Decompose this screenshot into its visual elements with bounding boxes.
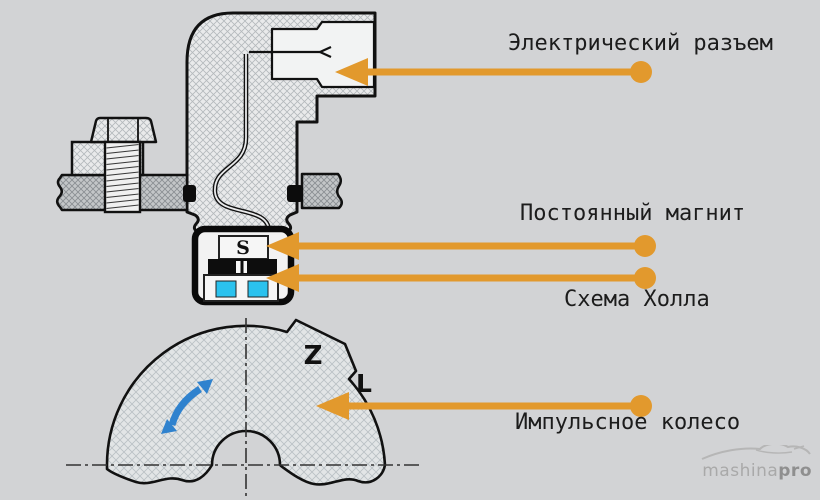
magnet-pole-letter: S [236, 237, 250, 259]
mounting-plate-right [302, 174, 342, 208]
watermark-text: mashinapro [682, 463, 812, 480]
hall-circuit-board [204, 275, 278, 301]
gap-letter: L [356, 369, 372, 398]
hall-element [208, 259, 277, 275]
diagram-canvas: S [0, 0, 820, 500]
watermark-brand: mashina [702, 461, 778, 481]
label-hall-circuit: Схема Холла [564, 289, 710, 311]
label-electrical-connector: Электрический разъем [508, 33, 773, 55]
watermark: mashinapro [682, 445, 812, 480]
permanent-magnet: S [219, 236, 268, 259]
label-impulse-wheel: Импульсное колесо [515, 412, 740, 434]
tooth-letter: Z [304, 341, 323, 371]
bolt-head [91, 118, 156, 142]
seal-left [183, 185, 196, 202]
label-permanent-magnet: Постоянный магнит [520, 203, 745, 225]
seal-right [287, 185, 303, 202]
bolt-threads [107, 144, 139, 210]
watermark-brand-suffix: pro [778, 461, 812, 481]
callout-magnet-arrow [266, 232, 656, 260]
sensor-assembly: S [57, 13, 375, 302]
callout-connector-arrow [335, 58, 652, 86]
